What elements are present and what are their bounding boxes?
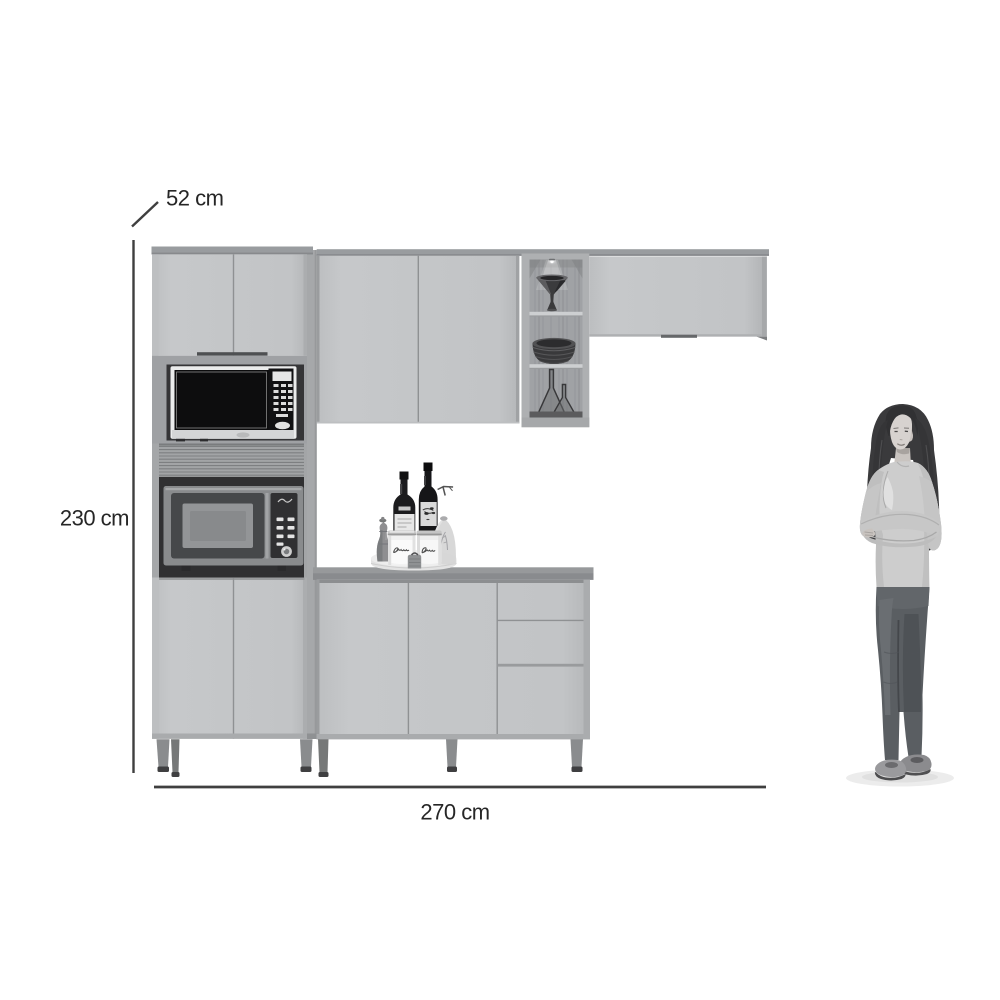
svg-text:270 cm: 270 cm xyxy=(420,800,489,825)
svg-text:52 cm: 52 cm xyxy=(166,186,223,211)
svg-text:230 cm: 230 cm xyxy=(60,506,129,531)
